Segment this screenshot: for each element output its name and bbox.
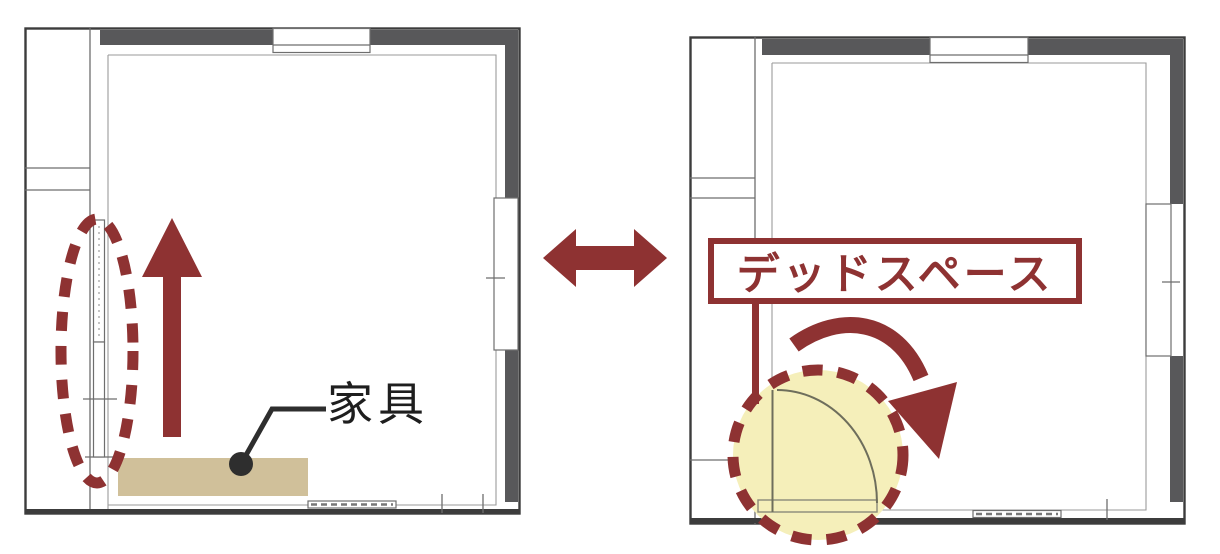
furniture-leader-dot — [229, 452, 253, 476]
right-plan-right-wall-segment — [1170, 39, 1183, 204]
right-plan-right-window — [1146, 204, 1171, 356]
left-plan-top-wall-segment — [100, 30, 273, 45]
dead-space-connector-line — [752, 300, 759, 404]
left-right-arrow-icon — [543, 229, 667, 287]
right-plan-top-wall-segment — [762, 39, 930, 55]
left-plan-top-wall-segment — [370, 30, 518, 45]
dead-space-label: デッドスペース — [737, 240, 1054, 302]
left-plan-top-window — [273, 29, 370, 53]
right-plan-top-wall-segment — [1028, 39, 1173, 55]
floor-plan-comparison-diagram: 家具 デッドスペース — [0, 0, 1220, 554]
left-plan-right-wall-segment — [505, 350, 518, 502]
right-plan-right-wall-segment — [1170, 356, 1183, 502]
left-plan-bottom-wall — [25, 509, 520, 514]
left-floor-plan — [25, 28, 520, 514]
furniture-label: 家具 — [327, 381, 429, 427]
left-plan-right-window — [494, 198, 518, 350]
right-plan-top-window — [930, 38, 1028, 63]
furniture-block — [118, 458, 308, 496]
dead-space-callout: デッドスペース — [708, 238, 1082, 304]
left-plan-right-wall-segment — [505, 30, 518, 198]
